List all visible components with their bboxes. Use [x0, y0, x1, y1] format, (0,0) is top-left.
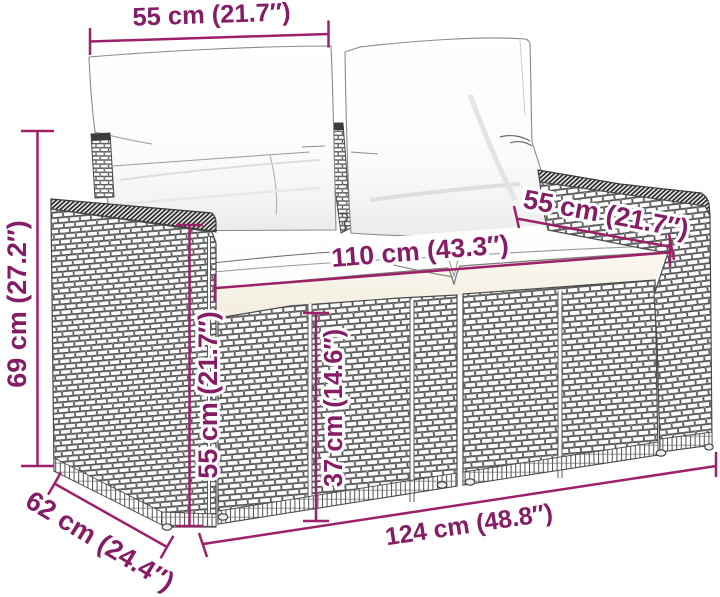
svg-text:55 cm (21.7″): 55 cm (21.7″) — [193, 311, 223, 479]
svg-text:37 cm (14.6″): 37 cm (14.6″) — [320, 329, 348, 487]
svg-text:69 cm (27.2″): 69 cm (27.2″) — [2, 220, 32, 388]
svg-text:55 cm (21.7″): 55 cm (21.7″) — [132, 0, 291, 32]
